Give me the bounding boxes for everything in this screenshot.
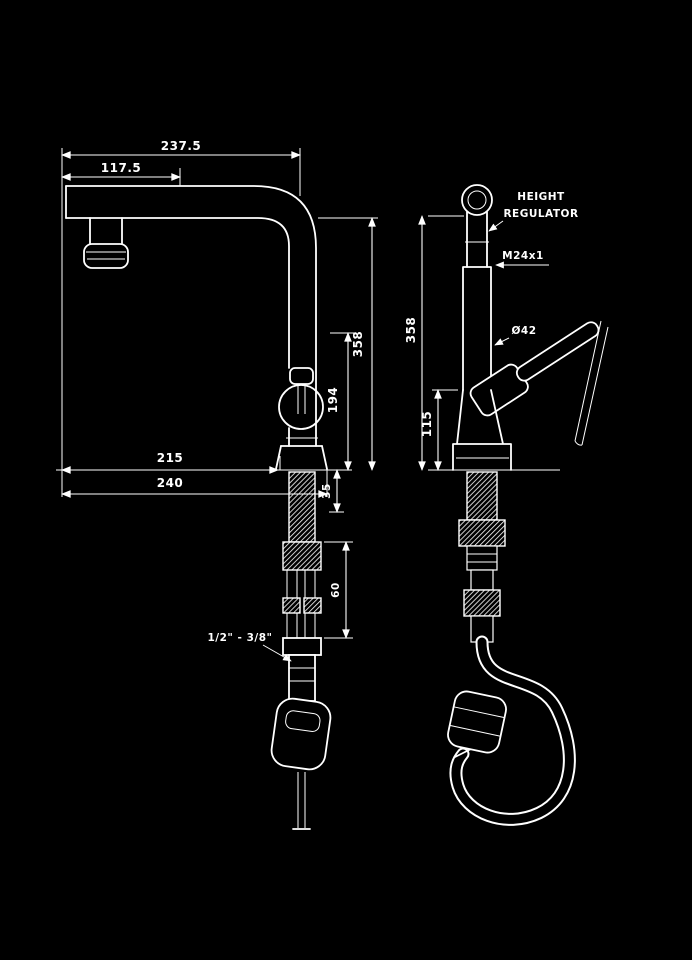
- body-diameter-leader: [495, 338, 509, 345]
- dim-tip-offset: 117.5: [101, 161, 141, 175]
- spray-handle-body: [270, 697, 333, 772]
- hose-joint-block: [283, 638, 321, 655]
- front-view: 237.5 117.5 358 194 215 240 35 60 1/2" -…: [56, 139, 378, 829]
- side-body-column: [463, 267, 491, 390]
- dim-shank-length: 60: [330, 582, 342, 598]
- base-escutcheon: [276, 446, 327, 469]
- mounting-nut-side: [459, 520, 505, 546]
- handle-lever-tab: [290, 368, 313, 384]
- aerator-head: [84, 244, 128, 268]
- front-under-counter: [56, 470, 352, 829]
- handle-slot-lines: [298, 384, 305, 414]
- hose-weight-body: [446, 689, 509, 755]
- body-diameter-label: Ø42: [511, 325, 536, 337]
- dim-clearance: 194: [326, 387, 340, 414]
- spray-hose-column: [289, 655, 315, 701]
- side-under-counter: [428, 470, 569, 819]
- dim-overall-depth: 240: [157, 476, 184, 490]
- front-faucet-outline: [66, 186, 327, 469]
- dim-reach-to-base: 215: [157, 451, 184, 465]
- hose-threads-label: 1/2" - 3/8": [207, 632, 272, 644]
- supply-hoses-front-lower: [287, 613, 315, 638]
- regulator-leader: [489, 221, 503, 231]
- hose-weight: [446, 689, 509, 755]
- dim-body-height: 115: [420, 411, 434, 438]
- supply-hoses-front: [287, 570, 315, 598]
- shank-extension: [467, 546, 497, 570]
- dim-side-height: 358: [404, 317, 418, 344]
- spout-inner-edge: [66, 218, 289, 368]
- regulator-label-line1: HEIGHT: [517, 191, 565, 203]
- extension-lines-side: [428, 216, 464, 390]
- threaded-shank-front: [289, 472, 315, 542]
- connector-upper: [471, 570, 493, 590]
- threaded-shank-side: [467, 472, 497, 520]
- spray-handle-front: [270, 697, 333, 772]
- spout-end-circle-inner: [468, 191, 486, 209]
- spray-tail-hose: [298, 772, 305, 828]
- dim-spout-reach: 237.5: [161, 139, 201, 153]
- spout-end-circle-outer: [462, 185, 492, 215]
- mounting-nut-front: [283, 542, 321, 570]
- aerator-stem: [90, 218, 122, 244]
- regulator-label-line2: REGULATOR: [503, 208, 578, 220]
- hose-fitting-right: [304, 598, 321, 613]
- dim-height-above-deck: 358: [351, 331, 365, 358]
- aerator-thread-label: M24x1: [502, 250, 544, 262]
- connector-hatched: [464, 590, 500, 616]
- faucet-technical-drawing: 237.5 117.5 358 194 215 240 35 60 1/2" -…: [0, 0, 692, 960]
- hose-fitting-left: [283, 598, 300, 613]
- spout-neck: [467, 212, 487, 267]
- aerator-head-lines: [86, 252, 126, 259]
- side-view: 358 115 M24x1 Ø42 HEIGHT REGULATOR: [404, 185, 608, 819]
- handle-assembly: [468, 313, 606, 418]
- dim-deck-thickness: 35: [321, 483, 333, 499]
